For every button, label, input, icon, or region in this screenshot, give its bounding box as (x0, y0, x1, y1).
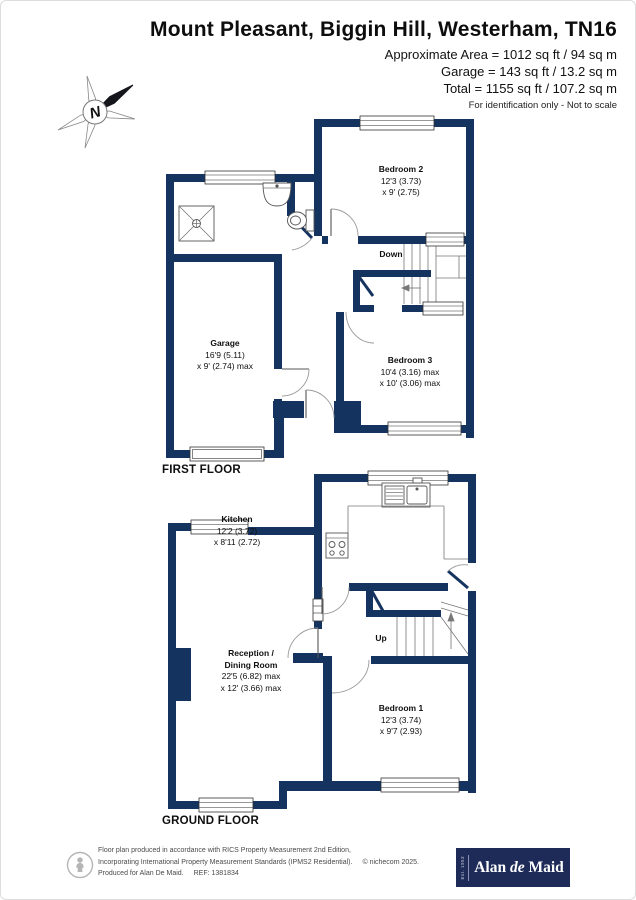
toilet-icon (288, 210, 315, 231)
ground-floor-label: GROUND FLOOR (162, 815, 259, 827)
stairs-down-label: Down (359, 249, 423, 259)
stairs-up-arrow-icon (448, 613, 454, 621)
logo-divider (468, 855, 469, 881)
stove-icon (326, 533, 348, 558)
page-title: Mount Pleasant, Biggin Hill, Westerham, … (19, 18, 617, 42)
logo-name: Alan de Maid (474, 859, 564, 877)
identification-note: For identification only - Not to scale (469, 100, 617, 111)
garage-area-line: Garage = 143 sq ft / 13.2 sq m (385, 63, 617, 80)
compass-star: N (58, 76, 135, 148)
room-label-bedroom2: Bedroom 2 12'3 (3.73) x 9' (2.75) (331, 164, 471, 199)
reference-number: REF: 1381834 (194, 870, 239, 877)
footer-line1: Floor plan produced in accordance with R… (98, 845, 419, 857)
person-icon (65, 850, 95, 880)
approximate-area-line: Approximate Area = 1012 sq ft / 94 sq m (385, 46, 617, 63)
area-summary: Approximate Area = 1012 sq ft / 94 sq m … (385, 46, 617, 97)
kitchen-counter (348, 506, 468, 559)
garage-door (190, 447, 264, 461)
bathroom-sink-icon (263, 183, 291, 206)
first-floor-plan (161, 106, 481, 466)
first-floor-label: FIRST FLOOR (162, 464, 241, 476)
footer-disclaimer: Floor plan produced in accordance with R… (98, 845, 419, 880)
total-area-line: Total = 1155 sq ft / 107.2 sq m (385, 80, 617, 97)
logo-est-label: Est. 1953 (460, 856, 465, 880)
room-label-bedroom3: Bedroom 3 10'4 (3.16) max x 10' (3.06) m… (340, 355, 480, 390)
floorplan-page: Mount Pleasant, Biggin Hill, Westerham, … (0, 0, 636, 900)
footer-line2: Incorporating International Property Mea… (98, 857, 419, 869)
agency-logo: Est. 1953 Alan de Maid (456, 848, 570, 887)
footer-line3: Produced for Alan De Maid.REF: 1381834 (98, 868, 419, 880)
compass-icon: N (51, 71, 141, 156)
stairs-up-label: Up (351, 633, 411, 643)
stairs-down-arrow-icon (402, 285, 409, 291)
copyright: © nichecom 2025. (362, 859, 419, 866)
room-label-bedroom1: Bedroom 1 12'3 (3.74) x 9'7 (2.93) (331, 703, 471, 738)
room-label-kitchen: Kitchen 12'2 (3.72) x 8'11 (2.72) (167, 514, 307, 549)
shower-icon (179, 206, 214, 241)
room-label-reception: Reception / Dining Room 22'5 (6.82) max … (181, 648, 321, 694)
room-label-garage: Garage 16'9 (5.11) x 9' (2.74) max (155, 338, 295, 373)
